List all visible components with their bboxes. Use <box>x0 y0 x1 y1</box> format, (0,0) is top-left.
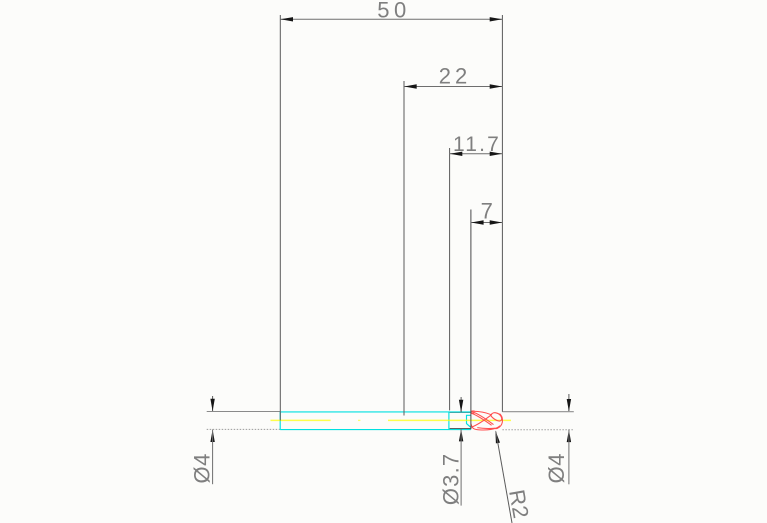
svg-text:7: 7 <box>481 199 493 224</box>
svg-text:22: 22 <box>439 64 471 89</box>
svg-text:Ø3.7: Ø3.7 <box>439 453 464 506</box>
svg-text:R2: R2 <box>504 488 534 521</box>
svg-text:Ø4: Ø4 <box>544 453 569 483</box>
svg-text:50: 50 <box>377 0 410 23</box>
svg-text:11.7: 11.7 <box>453 133 501 156</box>
svg-text:Ø4: Ø4 <box>189 453 214 483</box>
